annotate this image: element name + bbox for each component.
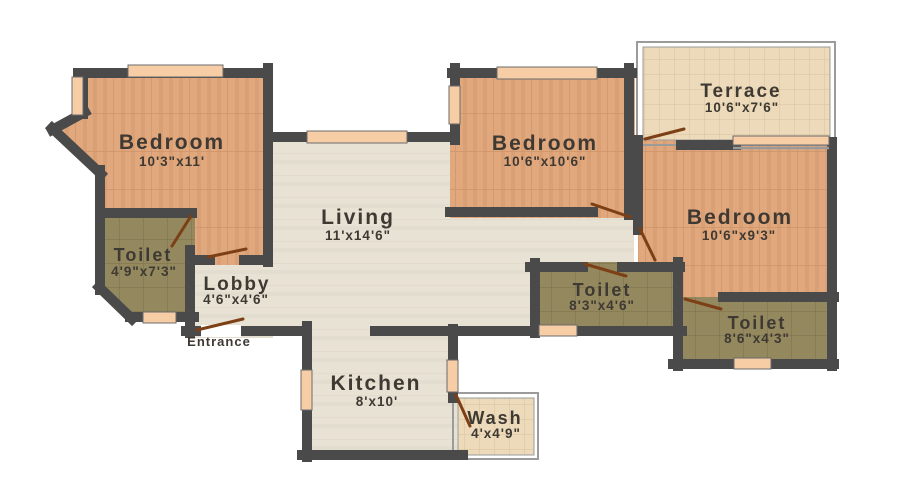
toilet-center-window xyxy=(539,325,577,336)
kitchen-window-left xyxy=(301,370,312,410)
living-window xyxy=(307,131,407,143)
terrace-sliding-window xyxy=(733,136,829,145)
bedroom-right-dims: 10'6"x9'3" xyxy=(702,228,776,243)
bedroom-top-left-window-side xyxy=(72,77,83,115)
toilet-right-window xyxy=(734,358,771,369)
toilet-left-dims: 4'9"x7'3" xyxy=(111,264,177,279)
bedroom-top-left-window-top xyxy=(128,65,223,77)
wash-dims: 4'x4'9" xyxy=(471,426,521,441)
toilet-right-label: Toilet xyxy=(728,313,787,333)
bedroom-top-left-dims: 10'3"x11' xyxy=(139,154,205,169)
living-dims: 11'x14'6" xyxy=(325,228,391,243)
terrace-dims: 10'6"x7'6" xyxy=(705,100,779,115)
wash-label: Wash xyxy=(467,408,522,428)
bedroom-top-middle-dims: 10'6"x10'6" xyxy=(504,154,587,169)
entrance-label: Entrance xyxy=(187,334,251,349)
floor-plan-canvas: Bedroom 10'3"x11' Toilet 4'9"x7'3" Lobby… xyxy=(0,0,900,500)
bedroom-top-left-label: Bedroom xyxy=(119,131,225,154)
toilet-right-dims: 8'6"x4'3" xyxy=(724,331,790,346)
kitchen-label: Kitchen xyxy=(330,372,421,395)
toilet-center-label: Toilet xyxy=(573,280,632,300)
lobby-dims: 4'6"x4'6" xyxy=(203,292,269,307)
terrace-label: Terrace xyxy=(700,81,781,102)
floor-plan: Bedroom 10'3"x11' Toilet 4'9"x7'3" Lobby… xyxy=(0,0,900,500)
toilet-left-window xyxy=(143,312,176,323)
kitchen-window-right xyxy=(447,360,458,392)
bedroom-top-middle-window-side xyxy=(449,86,460,124)
bedroom-top-middle-label: Bedroom xyxy=(492,132,598,155)
toilet-center-dims: 8'3"x4'6" xyxy=(569,298,635,313)
bedroom-top-middle-window-top xyxy=(497,67,597,79)
living-label: Living xyxy=(321,206,395,229)
kitchen-dims: 8'x10' xyxy=(356,394,398,409)
toilet-left-label: Toilet xyxy=(114,245,173,265)
bedroom-right-label: Bedroom xyxy=(687,206,793,229)
